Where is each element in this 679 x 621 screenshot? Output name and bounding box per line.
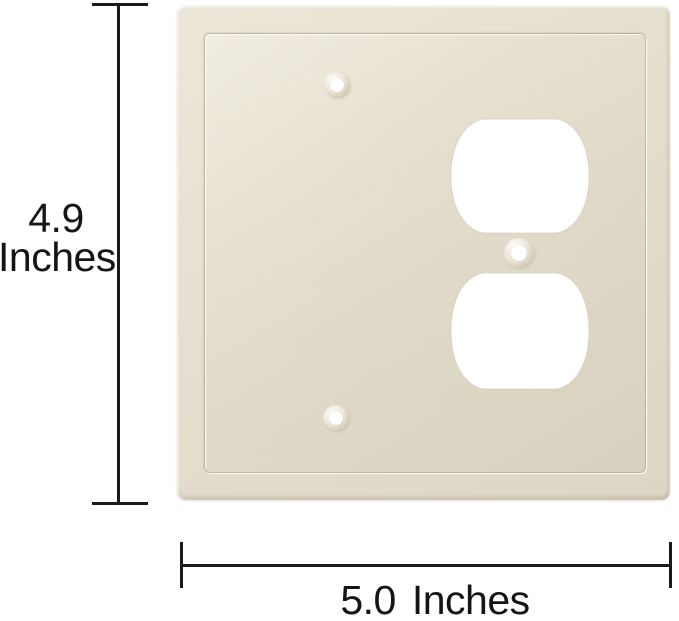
screw-hole-bottom-opening	[329, 411, 343, 425]
screw-hole-center	[504, 238, 534, 268]
width-dimension-line	[181, 564, 671, 567]
product-dimension-image: 4.9 Inches 5.0 Inches	[0, 0, 679, 621]
screw-hole-top-opening	[330, 78, 344, 92]
duplex-outlet-cutout-top	[450, 118, 590, 234]
height-unit: Inches	[0, 238, 114, 277]
plate-recessed-panel-groove	[204, 33, 646, 473]
width-value: 5.0	[340, 580, 396, 620]
screw-hole-top	[324, 72, 350, 98]
width-dimension-tick-right	[669, 542, 672, 588]
screw-hole-center-opening	[511, 245, 527, 261]
height-dimension-tick-bottom	[92, 502, 148, 505]
width-dimension-label: 5.0 Inches	[265, 580, 605, 620]
height-dimension-tick-top	[92, 3, 148, 6]
width-unit: Inches	[412, 580, 530, 620]
wall-plate	[177, 5, 670, 500]
height-dimension-line	[117, 4, 120, 504]
duplex-outlet-cutout-bottom	[450, 272, 590, 390]
height-value: 4.9	[0, 199, 114, 238]
height-dimension-label: 4.9 Inches	[0, 199, 114, 277]
screw-hole-bottom	[323, 405, 349, 431]
